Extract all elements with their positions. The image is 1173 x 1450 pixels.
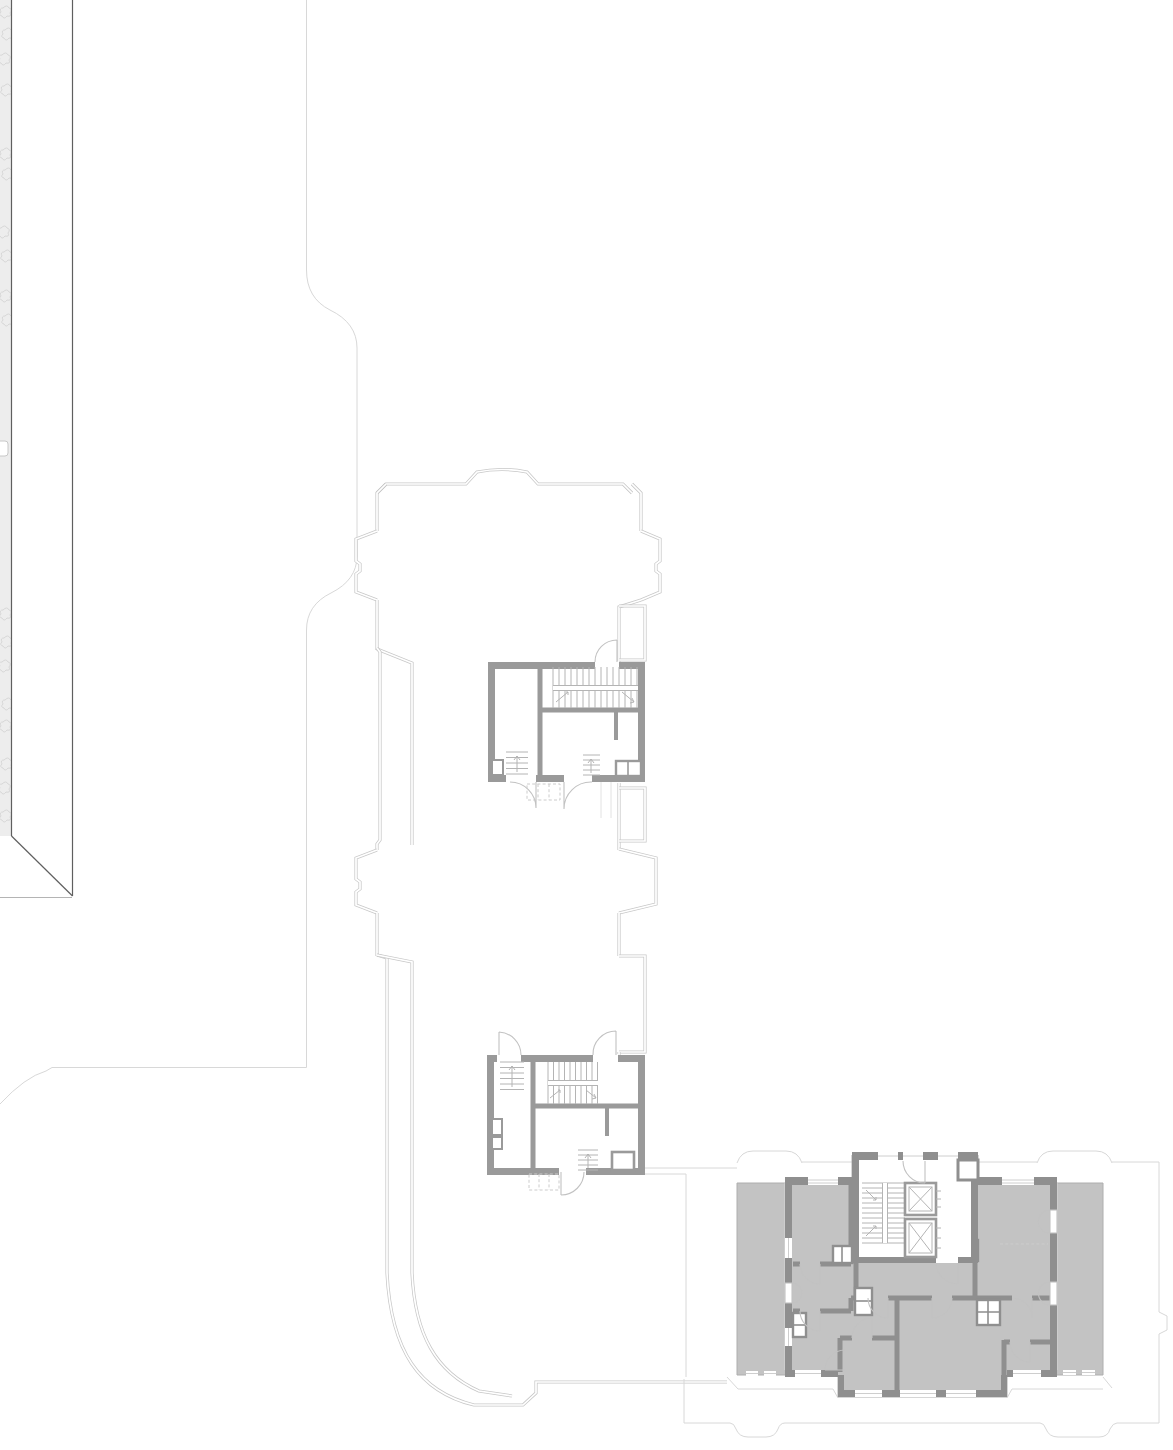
- stair-core-upper: [488, 640, 645, 818]
- central-wing: [356, 470, 727, 1406]
- site-boundary: [0, 0, 357, 1104]
- window: [785, 1326, 792, 1348]
- window: [806, 1177, 840, 1185]
- cornice-corner-right: [1037, 1151, 1112, 1163]
- apartment-building: [645, 1151, 1167, 1437]
- duct-shaft: [492, 760, 503, 775]
- entrance-steps-dashed: [529, 1174, 559, 1190]
- window: [795, 1370, 821, 1377]
- corner-diagonal: [12, 836, 73, 896]
- cornice-corner-left: [737, 1151, 802, 1163]
- elevator-2: [905, 1219, 941, 1257]
- duct-shaft: [492, 1119, 502, 1135]
- adjacent-building-edge: [0, 0, 73, 898]
- duct-shaft: [616, 761, 641, 776]
- duct-shaft: [492, 1137, 502, 1149]
- path-lines: [601, 782, 611, 818]
- facade-hatch-strip: [0, 0, 11, 836]
- shaft-room: [958, 1160, 978, 1180]
- window: [785, 1236, 792, 1260]
- elevator-1: [905, 1183, 941, 1215]
- stair-core-lower: [487, 1031, 645, 1195]
- entrance-steps-dashed: [527, 784, 560, 800]
- site-boundary-path: [0, 0, 357, 1104]
- core-top-windows: [878, 1152, 958, 1160]
- window: [1013, 1370, 1041, 1377]
- bay-window: [855, 1390, 976, 1397]
- window: [1000, 1177, 1036, 1185]
- floor-plan-canvas: [0, 0, 1173, 1450]
- floor-plan-drawing: [0, 0, 1173, 1450]
- wing-shell-outline: [356, 470, 727, 1406]
- facade-opening: [0, 441, 8, 456]
- duct-shaft: [612, 1152, 634, 1170]
